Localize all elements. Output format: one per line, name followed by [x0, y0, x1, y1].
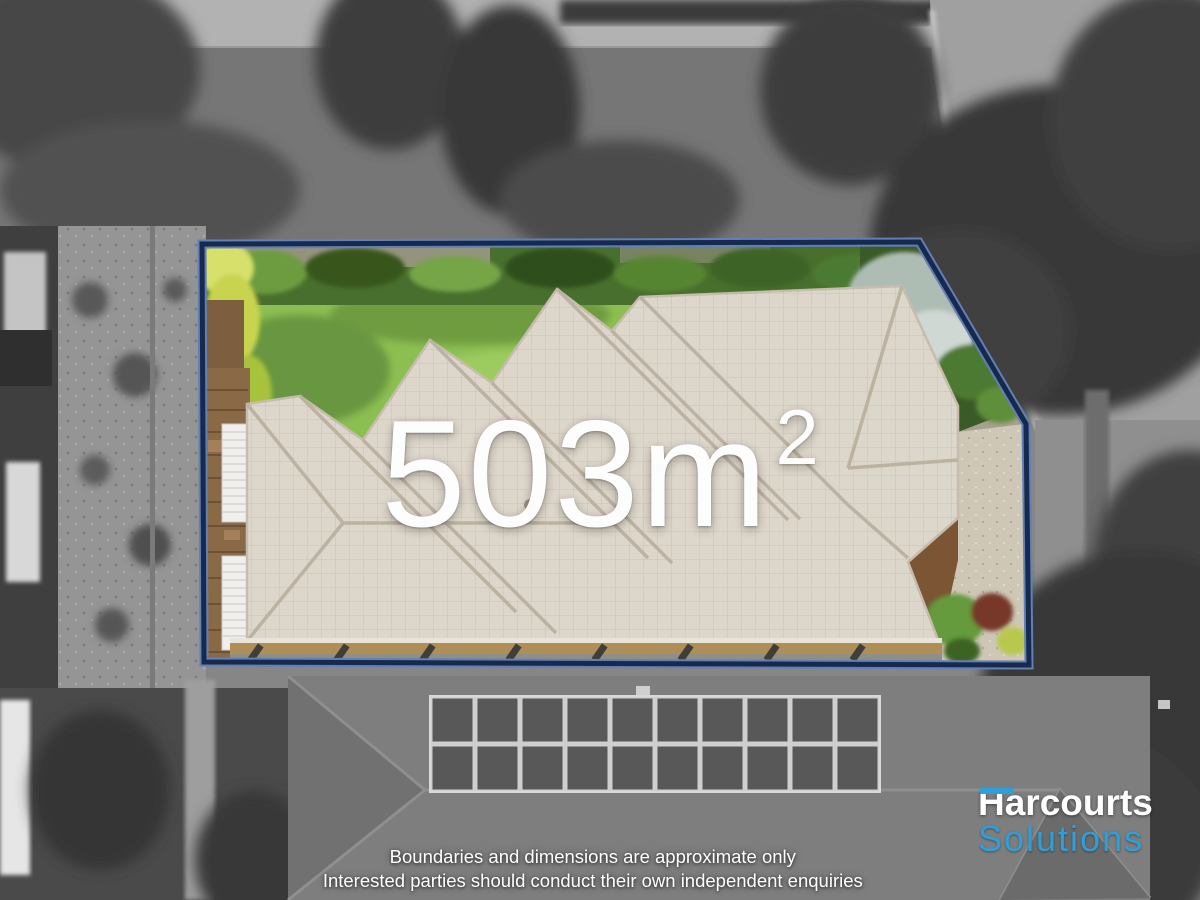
disclaimer-line2: Interested parties should conduct their …	[323, 869, 863, 893]
disclaimer-line1: Boundaries and dimensions are approximat…	[323, 845, 863, 869]
shrub	[409, 256, 501, 292]
brand-logo: Harcourts Solutions	[978, 784, 1153, 857]
area-value: 503m	[381, 389, 769, 559]
plant	[163, 278, 187, 302]
logo-underline	[980, 788, 1014, 794]
stone	[224, 530, 240, 540]
solutions-wordmark: Solutions	[978, 821, 1153, 857]
neighbor-roof-shadow	[0, 330, 52, 386]
shrub	[614, 256, 706, 292]
pergola-beam	[230, 643, 942, 654]
roof-vent	[636, 686, 650, 695]
shrub-red	[971, 593, 1013, 631]
aerial-photo: 503m2 Boundaries and dimensions are appr…	[0, 0, 1200, 900]
plant	[72, 282, 108, 318]
area-superscript: 2	[775, 393, 818, 481]
roof-vent	[1158, 700, 1170, 709]
shrub	[710, 248, 810, 288]
shrub	[305, 248, 405, 288]
shed-roof	[0, 700, 30, 875]
tree-canopy	[30, 710, 170, 870]
fence-line	[150, 226, 155, 708]
neighbor-skylight	[4, 252, 46, 340]
plant	[95, 608, 129, 642]
plant	[80, 455, 110, 485]
neighbor-skylight	[6, 462, 40, 582]
shrub	[505, 248, 615, 288]
gutter-line	[230, 638, 942, 643]
shrub	[944, 638, 980, 664]
logo-underline-bar	[980, 788, 1014, 794]
area-label: 503m2	[381, 398, 819, 550]
disclaimer: Boundaries and dimensions are approximat…	[323, 845, 863, 894]
solar-panel-array	[430, 696, 880, 792]
